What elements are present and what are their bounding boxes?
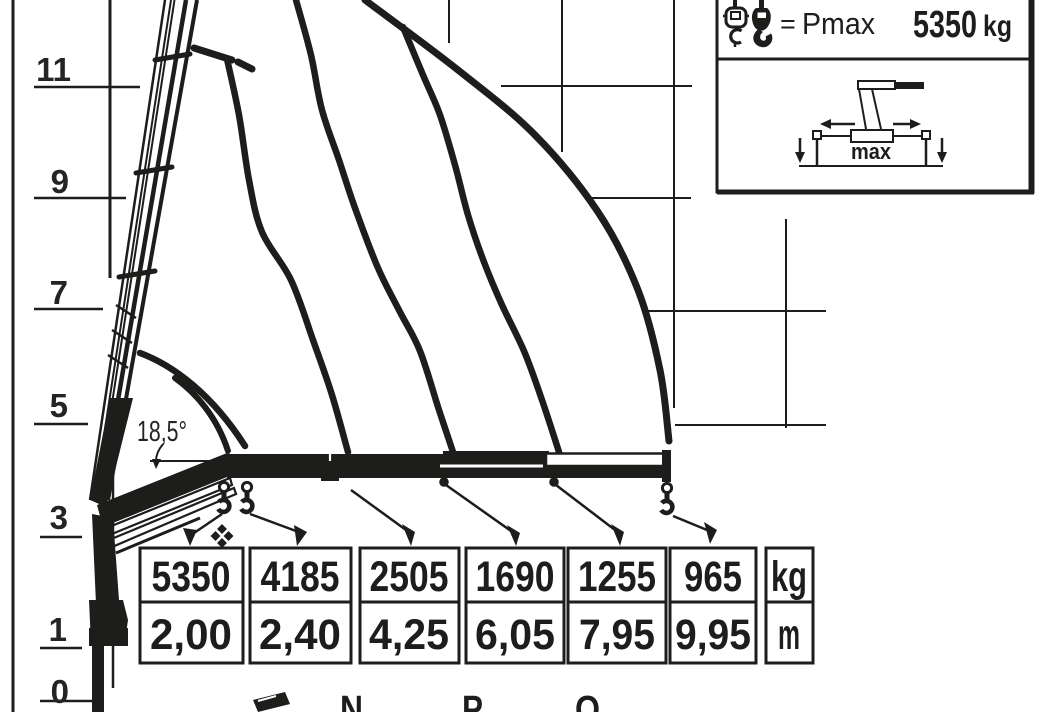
- svg-text:5350: 5350: [913, 4, 977, 46]
- svg-text:Q: Q: [575, 689, 600, 712]
- svg-text:3: 3: [50, 499, 68, 536]
- svg-text:965: 965: [684, 553, 742, 601]
- svg-text:7,95: 7,95: [579, 611, 655, 659]
- svg-text:kg: kg: [983, 10, 1012, 43]
- svg-text:4,25: 4,25: [369, 611, 449, 659]
- svg-text:5350: 5350: [152, 553, 231, 601]
- svg-text:P: P: [462, 689, 483, 712]
- svg-text:1690: 1690: [476, 553, 555, 601]
- svg-text:2,40: 2,40: [259, 611, 341, 659]
- svg-text:7: 7: [50, 274, 68, 311]
- svg-text:9: 9: [51, 163, 69, 200]
- svg-text:1: 1: [49, 611, 67, 648]
- svg-text:5: 5: [50, 387, 68, 424]
- svg-text:kg: kg: [771, 553, 807, 601]
- svg-text:9,95: 9,95: [675, 611, 751, 659]
- svg-text:11: 11: [36, 51, 71, 88]
- svg-text:=: =: [780, 9, 796, 39]
- svg-text:0: 0: [51, 673, 69, 710]
- svg-text:2,00: 2,00: [150, 611, 232, 659]
- svg-text:1255: 1255: [578, 553, 656, 601]
- svg-text:m: m: [778, 611, 800, 659]
- svg-text:N: N: [340, 689, 363, 712]
- svg-text:4185: 4185: [261, 553, 340, 601]
- svg-text:6,05: 6,05: [475, 611, 555, 659]
- svg-text:max: max: [851, 139, 892, 164]
- svg-text:2505: 2505: [370, 553, 449, 601]
- svg-text:18,5°: 18,5°: [137, 416, 187, 448]
- svg-text:Pmax: Pmax: [802, 6, 875, 41]
